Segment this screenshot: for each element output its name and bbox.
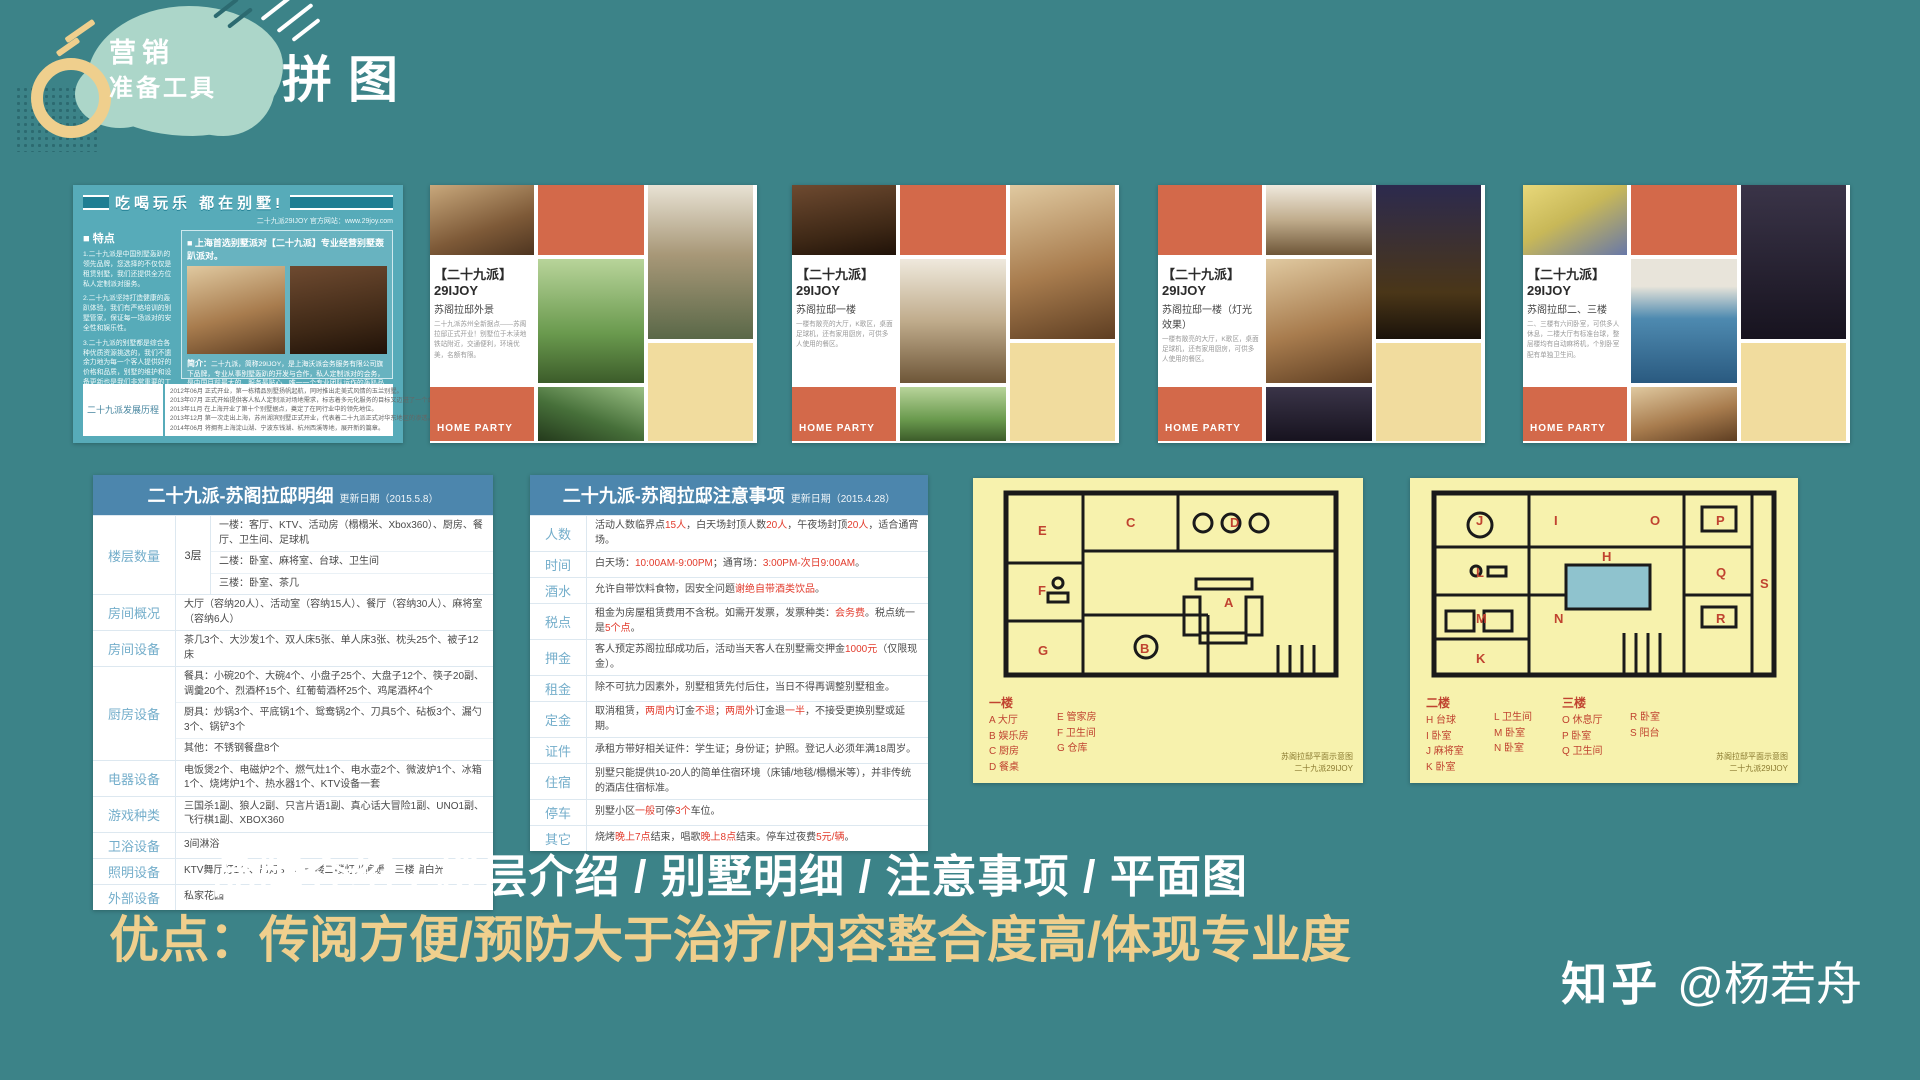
- row-line: 茶几3个、大沙发1个、双人床5张、单人床3张、枕头25个、被子12床: [176, 631, 493, 666]
- highlighted-text: 3:00PM-次日9:00AM: [763, 558, 855, 569]
- history-label: 二十九派发展历程: [83, 384, 165, 436]
- history-line: 2013年12月 第一次走出上海，苏州湖滨别墅正式开业，代表着二十九派正式对华东…: [170, 414, 446, 423]
- table-row: 押金客人预定苏阁拉邸成功后，活动当天客人在别墅需交押金1000元（仅限现金）。: [530, 639, 928, 675]
- photo-dining-cabinet: [792, 185, 896, 255]
- row-text: 别墅小区: [595, 806, 635, 817]
- legend-item: L 卫生间: [1494, 710, 1546, 726]
- legend-item: O 休息厅: [1562, 713, 1614, 729]
- flyer-description: 一楼有敞亮的大厅，K歌区，桌面足球机，还有家用厨房，可供多人使用的餐区。: [796, 320, 894, 351]
- row-label: 游戏种类: [93, 797, 175, 832]
- history-line: 2013年07月 正式开始提供客人私人定制派对场地需求，标志着多元化服务的目标又…: [170, 396, 446, 405]
- orange-block: [1158, 185, 1262, 255]
- floor-plan-drawing: HIJKLMNOPQRS: [1414, 483, 1794, 683]
- row-line: 电饭煲2个、电磁炉2个、燃气灶1个、电水壶2个、微波炉1个、冰箱1个、烧烤炉1个…: [176, 761, 493, 796]
- legend-item: P 卧室: [1562, 729, 1614, 745]
- highlighted-text: 一般: [635, 806, 655, 817]
- row-text: 。: [855, 558, 865, 569]
- brochure-headline: ■ 上海首选别墅派对【二十九派】专业经营别墅轰趴派对。: [187, 236, 387, 262]
- summary-line: 品牌介绍 / 楼层介绍 / 别墅明细 / 注意事项 / 平面图: [60, 840, 1400, 905]
- yellow-block: [1376, 343, 1481, 441]
- advantages-line: 优点：传阅方便/预防大于治疗/内容整合度高/体现专业度: [30, 900, 1430, 972]
- slash-decoration-icon: [291, 18, 320, 42]
- row-text: 订金: [675, 706, 695, 717]
- home-party-label: HOME PARTY: [1158, 387, 1262, 441]
- room-letter: O: [1650, 513, 1660, 528]
- room-letter: K: [1476, 651, 1486, 666]
- flyer-subtitle: 苏阁拉邸二、三楼: [1527, 301, 1625, 316]
- table-row: 电器设备电饭煲2个、电磁炉2个、燃气灶1个、电水壶2个、微波炉1个、冰箱1个、烧…: [93, 760, 493, 796]
- row-line: 一楼：客厅、KTV、活动房（榻榻米、Xbox360）、厨房、餐厅、卫生间、足球机: [211, 516, 493, 551]
- legend-item: E 管家房: [1057, 710, 1109, 726]
- table-row: 房间概况大厅（容纳20人）、活动室（容纳15人）、餐厅（容纳30人）、麻将室（容…: [93, 594, 493, 630]
- legend-item: D 餐桌: [989, 760, 1041, 776]
- legend-floor-title: [1494, 694, 1546, 708]
- photo-villa-house: [648, 185, 753, 339]
- room-letter: A: [1224, 595, 1234, 610]
- row-content: 取消租赁，两周内订金不退；两周外订金退一半，不接受更换别墅或延期。: [586, 702, 928, 737]
- room-letter: R: [1716, 611, 1726, 626]
- table-row: 楼层数量3层一楼：客厅、KTV、活动房（榻榻米、Xbox360）、厨房、餐厅、卫…: [93, 515, 493, 594]
- table-title-text: 二十九派-苏阁拉邸注意事项: [563, 486, 785, 506]
- page-title: 拼图: [282, 40, 414, 112]
- row-line: 允许自带饮料食物，因安全问题谢绝自带酒类饮品。: [587, 580, 928, 601]
- flyer-brand: 【二十九派】29IJOY: [1527, 264, 1625, 298]
- table-update-date: 更新日期（2015.5.8）: [340, 494, 439, 505]
- row-line: 大厅（容纳20人）、活动室（容纳15人）、餐厅（容纳30人）、麻将室（容纳6人）: [176, 595, 493, 630]
- flyer-description: 一楼有敞亮的大厅，K歌区，桌面足球机，还有家用厨房，可供多人使用的餐区。: [1162, 335, 1260, 366]
- history-line: 2013年11月 在上海开业了第十个别墅据点，奠定了在同行业中的领先地位。: [170, 405, 446, 414]
- row-line: 其他：不锈钢餐盘8个: [176, 738, 493, 760]
- legend-item: R 卧室: [1630, 710, 1682, 726]
- home-party-label: HOME PARTY: [430, 387, 534, 441]
- highlighted-text: 3个: [675, 806, 691, 817]
- legend-floor-title: 二楼: [1426, 694, 1478, 711]
- row-content: 三国杀1副、狼人2副、只言片语1副、真心话大冒险1副、UNO1副、飞行棋1副、X…: [175, 797, 493, 832]
- row-content: 白天场：10:00AM-9:00PM；通宵场：3:00PM-次日9:00AM。: [586, 552, 928, 577]
- table-row: 租金除不可抗力因素外，别墅租赁先付后住，当日不得再调整别墅租金。: [530, 675, 928, 701]
- row-text: 。: [815, 584, 825, 595]
- feature-paragraph: 1.二十九派是中国别墅轰趴的领先品牌，您选择的不仅仅是租赁别墅，我们还提供全方位…: [83, 250, 173, 289]
- row-label: 人数: [530, 516, 586, 551]
- floor-plan-drawing: ABCDEFG: [978, 483, 1358, 683]
- row-text: 取消租赁，: [595, 706, 645, 717]
- row-label: 房间设备: [93, 631, 175, 666]
- row-content: 客人预定苏阁拉邸成功后，活动当天客人在别墅需交押金1000元（仅限现金）。: [586, 640, 928, 675]
- highlighted-text: 两周内: [645, 706, 675, 717]
- row-text: 除不可抗力因素外，别墅租赁先付后住，当日不得再调整别墅租金。: [595, 682, 895, 693]
- table-title: 二十九派-苏阁拉邸明细更新日期（2015.5.8）: [93, 475, 493, 515]
- row-extra: 3层: [175, 516, 210, 594]
- photo-living-hall: [1266, 259, 1372, 383]
- legend-column: R 卧室S 阳台: [1630, 694, 1682, 775]
- banner-bar: [290, 195, 393, 210]
- highlighted-text: 10:00AM-9:00PM: [635, 558, 713, 569]
- photo-living-room: [187, 266, 285, 354]
- zhihu-logo-text: 知乎: [1561, 958, 1661, 1010]
- row-label: 住宿: [530, 764, 586, 799]
- photo-ktv-room: [1266, 387, 1372, 441]
- photo-villa-entrance: [430, 185, 534, 255]
- room-letter: P: [1716, 513, 1725, 528]
- flyer-brand: 【二十九派】29IJOY: [796, 264, 894, 298]
- brochure-banner: 吃喝玩乐 都在别墅!: [83, 192, 393, 213]
- row-content: 电饭煲2个、电磁炉2个、燃气灶1个、电水壶2个、微波炉1个、冰箱1个、烧烤炉1个…: [175, 761, 493, 796]
- flyer-thumbnail-upper-floors[interactable]: 【二十九派】29IJOY 苏阁拉邸二、三楼 二、三楼有六间卧室，可供多人休息，二…: [1523, 185, 1850, 443]
- photo-kitchen: [1266, 185, 1372, 255]
- row-line: 餐具：小碗20个、大碗4个、小盘子25个、大盘子12个、筷子20副、调羹20个、…: [176, 667, 493, 702]
- floor-plan-first-floor[interactable]: ABCDEFG 一楼A 大厅B 娱乐房C 厨房D 餐桌 E 管家房F 卫生间G …: [973, 478, 1363, 783]
- legend-column: 一楼A 大厅B 娱乐房C 厨房D 餐桌: [989, 694, 1041, 775]
- row-text: 车位。: [691, 806, 721, 817]
- legend-item: F 卫生间: [1057, 726, 1109, 742]
- room-letter: E: [1038, 523, 1047, 538]
- row-line: 二楼：卧室、麻将室、台球、卫生间: [211, 551, 493, 573]
- row-text: ，白天场封顶人数: [686, 520, 766, 531]
- table-row: 证件承租方带好相关证件：学生证；身份证；护照。登记人必须年满18周岁。: [530, 737, 928, 763]
- legend-item: A 大厅: [989, 713, 1041, 729]
- room-letter: S: [1760, 576, 1769, 591]
- orange-block: [538, 185, 644, 255]
- row-label: 租金: [530, 676, 586, 701]
- legend-column: E 管家房F 卫生间G 仓库: [1057, 694, 1109, 775]
- table-row: 酒水允许自带饮料食物，因安全问题谢绝自带酒类饮品。: [530, 577, 928, 603]
- photo-dining-room: [290, 266, 388, 354]
- legend-column: L 卫生间M 卧室N 卧室: [1494, 694, 1546, 775]
- row-content: 租金为房屋租赁费用不含税。如需开发票，发票种类：会务费。税点统一是5个点。: [586, 604, 928, 639]
- row-text: 可停: [655, 806, 675, 817]
- highlighted-text: 1000元: [845, 644, 877, 655]
- caption-line: 二十九派29IJOY: [1716, 763, 1788, 775]
- row-label: 房间概况: [93, 595, 175, 630]
- row-text: 承租方带好相关证件：学生证；身份证；护照。登记人必须年满18周岁。: [595, 744, 916, 755]
- legend-item: N 卧室: [1494, 741, 1546, 757]
- yellow-block: [1741, 343, 1846, 441]
- legend-floor-title: [1057, 694, 1109, 708]
- legend-item: H 台球: [1426, 713, 1478, 729]
- room-letter: C: [1126, 515, 1136, 530]
- room-letter: I: [1554, 513, 1558, 528]
- row-label: 停车: [530, 800, 586, 825]
- legend-floor-title: [1630, 694, 1682, 708]
- banner-bar: [83, 195, 109, 210]
- row-text: 客人预定苏阁拉邸成功后，活动当天客人在别墅需交押金: [595, 644, 845, 655]
- caption-line: 二十九派29IJOY: [1281, 763, 1353, 775]
- flyer-subtitle: 苏阁拉邸一楼: [796, 301, 894, 316]
- flyer-thumbnail-first-floor[interactable]: 【二十九派】29IJOY 苏阁拉邸一楼 一楼有敞亮的大厅，K歌区，桌面足球机，还…: [792, 185, 1119, 443]
- floor-plan-caption: 苏阁拉邸平面示意图 二十九派29IJOY: [1716, 751, 1788, 775]
- table-row: 定金取消租赁，两周内订金不退；两周外订金退一半，不接受更换别墅或延期。: [530, 701, 928, 737]
- photo-garden: [900, 387, 1006, 441]
- row-line: 客人预定苏阁拉邸成功后，活动当天客人在别墅需交押金1000元（仅限现金）。: [587, 640, 928, 675]
- legend-item: Q 卫生间: [1562, 744, 1614, 760]
- highlighted-text: 不退: [695, 706, 715, 717]
- table-row: 厨房设备餐具：小碗20个、大碗4个、小盘子25个、大盘子12个、筷子20副、调羹…: [93, 666, 493, 760]
- table-row: 房间设备茶几3个、大沙发1个、双人床5张、单人床3张、枕头25个、被子12床: [93, 630, 493, 666]
- room-letter: F: [1038, 583, 1046, 598]
- row-line: 租金为房屋租赁费用不含税。如需开发票，发票种类：会务费。税点统一是5个点。: [587, 604, 928, 639]
- row-label: 酒水: [530, 578, 586, 603]
- row-line: 别墅小区一般可停3个车位。: [587, 802, 928, 823]
- row-text: ；: [715, 706, 725, 717]
- photo-night-lighting: [1376, 185, 1481, 339]
- row-line: 除不可抗力因素外，别墅租赁先付后住，当日不得再调整别墅租金。: [587, 678, 928, 699]
- row-text: 订金退: [755, 706, 785, 717]
- brochure-features: ■ 特点 1.二十九派是中国别墅轰趴的领先品牌，您选择的不仅仅是租赁别墅，我们还…: [83, 230, 173, 379]
- legend-item: K 卧室: [1426, 760, 1478, 776]
- table-row: 停车别墅小区一般可停3个车位。: [530, 799, 928, 825]
- brochure-photo-box: ■ 上海首选别墅派对【二十九派】专业经营别墅轰趴派对。 简介：二十九派，简称29…: [181, 230, 393, 379]
- badge-text: 营销: [109, 38, 217, 69]
- row-line: 活动人数临界点15人，白天场封顶人数20人，午夜场封顶20人，适合通宵场。: [587, 516, 928, 551]
- caption-line: 苏阁拉邸平面示意图: [1281, 751, 1353, 763]
- legend-column: 二楼H 台球I 卧室J 麻将室K 卧室: [1426, 694, 1478, 775]
- row-text: 别墅只能提供10-20人的简单住宿环境（床铺/地毯/榻榻米等），并非传统的酒店住…: [595, 768, 911, 794]
- row-text: ；通宵场：: [713, 558, 763, 569]
- legend-item: B 娱乐房: [989, 729, 1041, 745]
- row-label: 厨房设备: [93, 667, 175, 760]
- features-title: ■ 特点: [83, 230, 173, 246]
- row-line: 三国杀1副、狼人2副、只言片语1副、真心话大冒险1副、UNO1副、飞行棋1副、X…: [176, 797, 493, 832]
- flyer-subtitle: 苏阁拉邸外景: [434, 301, 532, 316]
- photo-living-hall: [1010, 185, 1115, 339]
- flyer-description: 二、三楼有六间卧室，可供多人休息，二楼大厅有标准台球，整层楼均有自动麻将机，个别…: [1527, 320, 1625, 361]
- flyer-subtitle: 苏阁拉邸一楼（灯光效果）: [1162, 301, 1260, 331]
- row-label: 定金: [530, 702, 586, 737]
- table-title-text: 二十九派-苏阁拉邸明细: [148, 486, 334, 506]
- legend-column: 三楼O 休息厅P 卧室Q 卫生间: [1562, 694, 1614, 775]
- home-party-label: HOME PARTY: [792, 387, 896, 441]
- row-content: 茶几3个、大沙发1个、双人床5张、单人床3张、枕头25个、被子12床: [175, 631, 493, 666]
- row-line: 白天场：10:00AM-9:00PM；通宵场：3:00PM-次日9:00AM。: [587, 554, 928, 575]
- row-content: 别墅小区一般可停3个车位。: [586, 800, 928, 825]
- row-label: 证件: [530, 738, 586, 763]
- photo-ktv-room: [1741, 185, 1846, 339]
- row-label: 电器设备: [93, 761, 175, 796]
- photo-hedge: [538, 387, 644, 441]
- legend-floor-title: 一楼: [989, 694, 1041, 711]
- row-label: 时间: [530, 552, 586, 577]
- banner-title: 吃喝玩乐 都在别墅!: [115, 192, 284, 213]
- legend-item: G 仓库: [1057, 741, 1109, 757]
- row-line: 厨具：炒锅3个、平底锅1个、鸳鸯锅2个、刀具5个、砧板3个、漏勺3个、锅铲3个: [176, 702, 493, 738]
- flyer-caption: 【二十九派】29IJOY 苏阁拉邸一楼（灯光效果） 一楼有敞亮的大厅，K歌区，桌…: [1158, 259, 1262, 383]
- highlighted-text: 5个点: [605, 623, 631, 634]
- row-label: 楼层数量: [93, 516, 175, 594]
- room-letter: D: [1230, 515, 1239, 530]
- row-label: 押金: [530, 640, 586, 675]
- row-text: ，午夜场封顶: [787, 520, 847, 531]
- intro-title: 简介：: [187, 359, 211, 368]
- legend-item: C 厨房: [989, 744, 1041, 760]
- flyer-thumbnail-exterior[interactable]: 【二十九派】29IJOY 苏阁拉邸外景 二十九派苏州全新据点——苏阁拉邸正式开业…: [430, 185, 757, 443]
- row-text: 白天场：: [595, 558, 635, 569]
- brochure-website: 二十九派29IJOY 官方网站：www.29joy.com: [83, 216, 393, 226]
- photo-bedroom-window: [1631, 387, 1737, 441]
- slash-decoration-icon: [64, 19, 95, 43]
- room-letter: J: [1476, 513, 1483, 528]
- brochure-history: 二十九派发展历程 2012年06月 正式开业，第一栋精品别墅扬帆起航，同时推出走…: [83, 384, 393, 436]
- row-content: 餐具：小碗20个、大碗4个、小盘子25个、大盘子12个、筷子20副、调羹20个、…: [175, 667, 493, 760]
- presentation-slide: 营销 准备工具 拼图 吃喝玩乐 都在别墅! 二十九派29IJOY 官方网站：ww…: [0, 0, 1920, 1080]
- legend-floor-title: 三楼: [1562, 694, 1614, 711]
- flyer-caption: 【二十九派】29IJOY 苏阁拉邸二、三楼 二、三楼有六间卧室，可供多人休息，二…: [1523, 259, 1627, 383]
- highlighted-text: 一半: [785, 706, 805, 717]
- yellow-ring-icon: [31, 58, 111, 138]
- room-letter: H: [1602, 549, 1611, 564]
- legend-item: J 麻将室: [1426, 744, 1478, 760]
- table-row: 住宿别墅只能提供10-20人的简单住宿环境（床铺/地毯/榻榻米等），并非传统的酒…: [530, 763, 928, 799]
- highlighted-text: 谢绝自带酒类饮品: [735, 584, 815, 595]
- yellow-block: [1010, 343, 1115, 441]
- marketing-tools-badge: 营销 准备工具: [109, 38, 217, 103]
- flyer-thumbnail-brochure[interactable]: 吃喝玩乐 都在别墅! 二十九派29IJOY 官方网站：www.29joy.com…: [73, 185, 403, 443]
- history-line: 2014年06月 将拥有上海淀山湖、宁波东钱湖、杭州西溪等地，展开新的篇章。: [170, 424, 446, 433]
- highlighted-text: 15人: [665, 520, 686, 531]
- highlighted-text: 会务费: [835, 608, 865, 619]
- flyer-brand: 【二十九派】29IJOY: [1162, 264, 1260, 298]
- row-label: 税点: [530, 604, 586, 639]
- highlighted-text: 20人: [766, 520, 787, 531]
- orange-block: [1631, 185, 1737, 255]
- villa-notice-table[interactable]: 二十九派-苏阁拉邸注意事项更新日期（2015.4.28） 人数活动人数临界点15…: [530, 475, 928, 851]
- row-line: 取消租赁，两周内订金不退；两周外订金退一半，不接受更换别墅或延期。: [587, 702, 928, 737]
- row-text: 租金为房屋租赁费用不含税。如需开发票，发票种类：: [595, 608, 835, 619]
- room-letter: G: [1038, 643, 1048, 658]
- watermark: 知乎@杨若舟: [1561, 948, 1862, 1014]
- row-content: 一楼：客厅、KTV、活动房（榻榻米、Xbox360）、厨房、餐厅、卫生间、足球机…: [210, 516, 493, 594]
- table-row: 税点租金为房屋租赁费用不含税。如需开发票，发票种类：会务费。税点统一是5个点。: [530, 603, 928, 639]
- photo-kitchen: [900, 259, 1006, 383]
- flyer-caption: 【二十九派】29IJOY 苏阁拉邸一楼 一楼有敞亮的大厅，K歌区，桌面足球机，还…: [792, 259, 896, 383]
- photo-bedroom: [1523, 185, 1627, 255]
- floor-plan-upper-floors[interactable]: HIJKLMNOPQRS 二楼H 台球I 卧室J 麻将室K 卧室 L 卫生间M …: [1410, 478, 1798, 783]
- row-line: 承租方带好相关证件：学生证；身份证；护照。登记人必须年满18周岁。: [587, 740, 928, 761]
- row-content: 承租方带好相关证件：学生证；身份证；护照。登记人必须年满18周岁。: [586, 738, 928, 763]
- table-row: 时间白天场：10:00AM-9:00PM；通宵场：3:00PM-次日9:00AM…: [530, 551, 928, 577]
- legend-item: I 卧室: [1426, 729, 1478, 745]
- table-row: 游戏种类三国杀1副、狼人2副、只言片语1副、真心话大冒险1副、UNO1副、飞行棋…: [93, 796, 493, 832]
- row-content: 除不可抗力因素外，别墅租赁先付后住，当日不得再调整别墅租金。: [586, 676, 928, 701]
- floor-plan-legend: 二楼H 台球I 卧室J 麻将室K 卧室 L 卫生间M 卧室N 卧室三楼O 休息厅…: [1426, 694, 1682, 775]
- legend-item: M 卧室: [1494, 726, 1546, 742]
- room-letter: B: [1140, 641, 1149, 656]
- row-content: 别墅只能提供10-20人的简单住宿环境（床铺/地毯/榻榻米等），并非传统的酒店住…: [586, 764, 928, 799]
- row-text: 。: [631, 623, 641, 634]
- room-letter: M: [1476, 611, 1487, 626]
- highlighted-text: 两周外: [725, 706, 755, 717]
- history-line: 2012年06月 正式开业，第一栋精品别墅扬帆起航，同时推出走美式风情的玉兰别墅…: [170, 387, 446, 396]
- table-update-date: 更新日期（2015.4.28）: [791, 494, 896, 505]
- orange-block: [900, 185, 1006, 255]
- row-content: 大厅（容纳20人）、活动室（容纳15人）、餐厅（容纳30人）、麻将室（容纳6人）: [175, 595, 493, 630]
- legend-item: S 阳台: [1630, 726, 1682, 742]
- badge-text: 准备工具: [109, 75, 217, 103]
- row-text: 允许自带饮料食物，因安全问题: [595, 584, 735, 595]
- yellow-block: [648, 343, 753, 441]
- row-text: 活动人数临界点: [595, 520, 665, 531]
- row-line: 三楼：卧室、茶几: [211, 573, 493, 595]
- flyer-thumbnail-first-floor-lights[interactable]: 【二十九派】29IJOY 苏阁拉邸一楼（灯光效果） 一楼有敞亮的大厅，K歌区，桌…: [1158, 185, 1485, 443]
- row-line: 别墅只能提供10-20人的简单住宿环境（床铺/地毯/榻榻米等），并非传统的酒店住…: [587, 764, 928, 799]
- feature-paragraph: 2.二十九派坚持打造健康的轰趴体验，我们有严格培训的别墅管家，保证每一场派对的安…: [83, 294, 173, 333]
- floor-plan-caption: 苏阁拉邸平面示意图 二十九派29IJOY: [1281, 751, 1353, 775]
- room-letter: Q: [1716, 565, 1726, 580]
- row-content: 活动人数临界点15人，白天场封顶人数20人，午夜场封顶20人，适合通宵场。: [586, 516, 928, 551]
- photo-billiard-table: [1631, 259, 1737, 383]
- flyer-brand: 【二十九派】29IJOY: [434, 264, 532, 298]
- table-title: 二十九派-苏阁拉邸注意事项更新日期（2015.4.28）: [530, 475, 928, 515]
- flyer-description: 二十九派苏州全新据点——苏阁拉邸正式开业！别墅位于木渎地铁站附近，交通便利，环境…: [434, 320, 532, 361]
- room-letter: L: [1476, 565, 1484, 580]
- photo-garden: [538, 259, 644, 383]
- caption-line: 苏阁拉邸平面示意图: [1716, 751, 1788, 763]
- table-row: 人数活动人数临界点15人，白天场封顶人数20人，午夜场封顶20人，适合通宵场。: [530, 515, 928, 551]
- flyer-caption: 【二十九派】29IJOY 苏阁拉邸外景 二十九派苏州全新据点——苏阁拉邸正式开业…: [430, 259, 534, 383]
- room-letter: N: [1554, 611, 1563, 626]
- home-party-label: HOME PARTY: [1523, 387, 1627, 441]
- floor-plan-legend: 一楼A 大厅B 娱乐房C 厨房D 餐桌 E 管家房F 卫生间G 仓库: [989, 694, 1109, 775]
- row-content: 允许自带饮料食物，因安全问题谢绝自带酒类饮品。: [586, 578, 928, 603]
- highlighted-text: 20人: [847, 520, 868, 531]
- author-handle: @杨若舟: [1677, 958, 1862, 1010]
